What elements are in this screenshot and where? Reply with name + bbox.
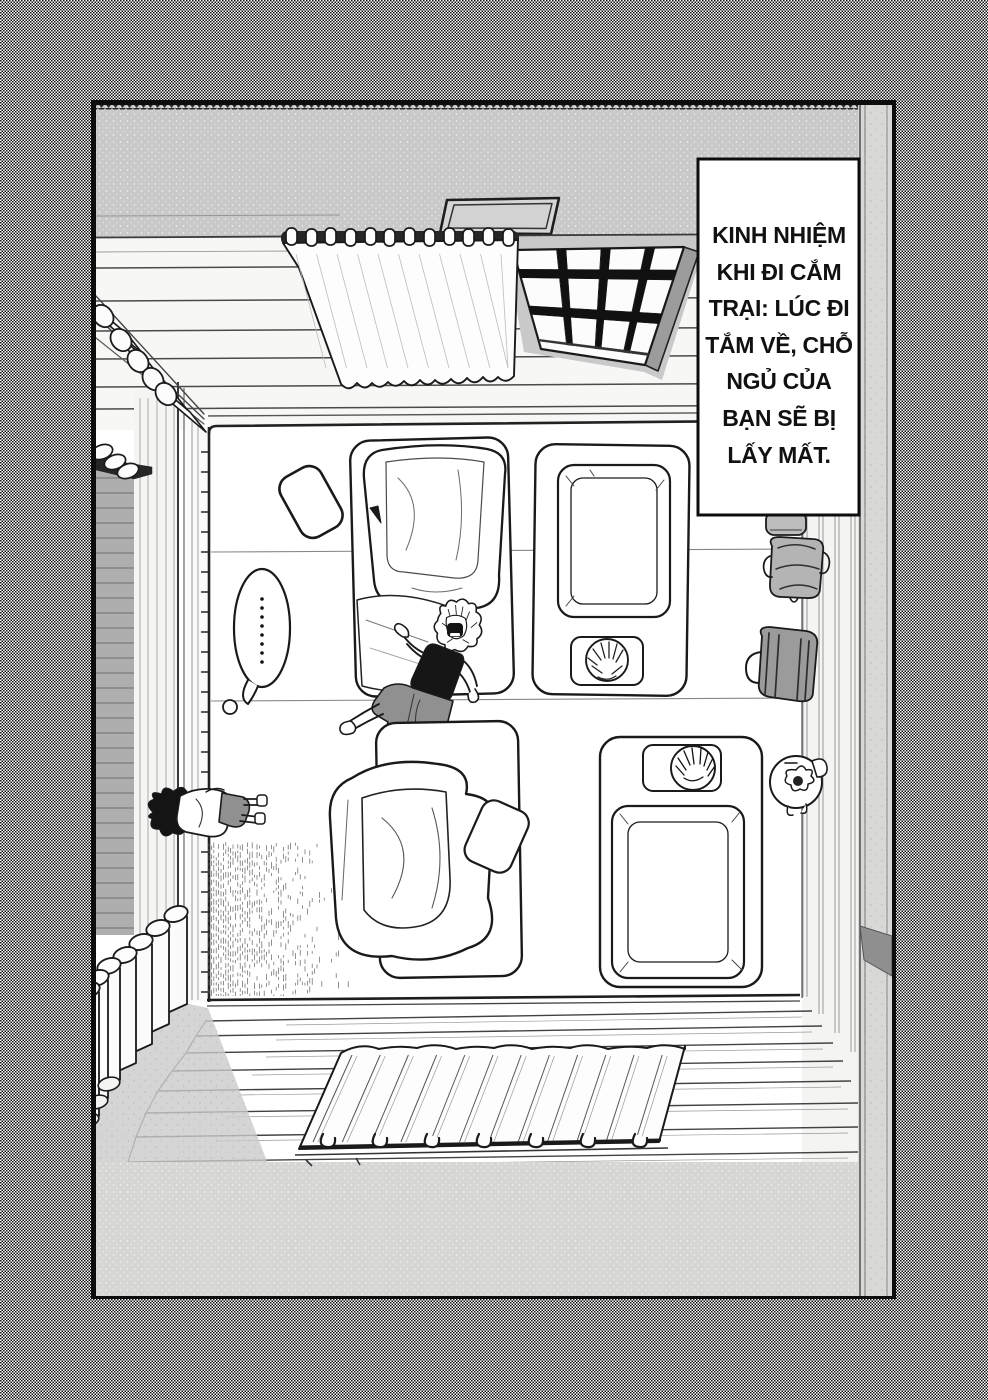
svg-text:LẤY MẤT.: LẤY MẤT. [727,441,830,468]
svg-text:NGỦ CỦA: NGỦ CỦA [726,366,831,394]
svg-text:KHI ĐI CẮM: KHI ĐI CẮM [717,258,842,285]
svg-text:BẠN SẼ BỊ: BẠN SẼ BỊ [722,404,836,431]
svg-text:TRẠI: LÚC ĐI: TRẠI: LÚC ĐI [709,294,850,321]
svg-text:KINH NHIỆM: KINH NHIỆM [712,221,846,248]
svg-text:TẮM VỀ, CHỖ: TẮM VỀ, CHỖ [705,330,852,358]
